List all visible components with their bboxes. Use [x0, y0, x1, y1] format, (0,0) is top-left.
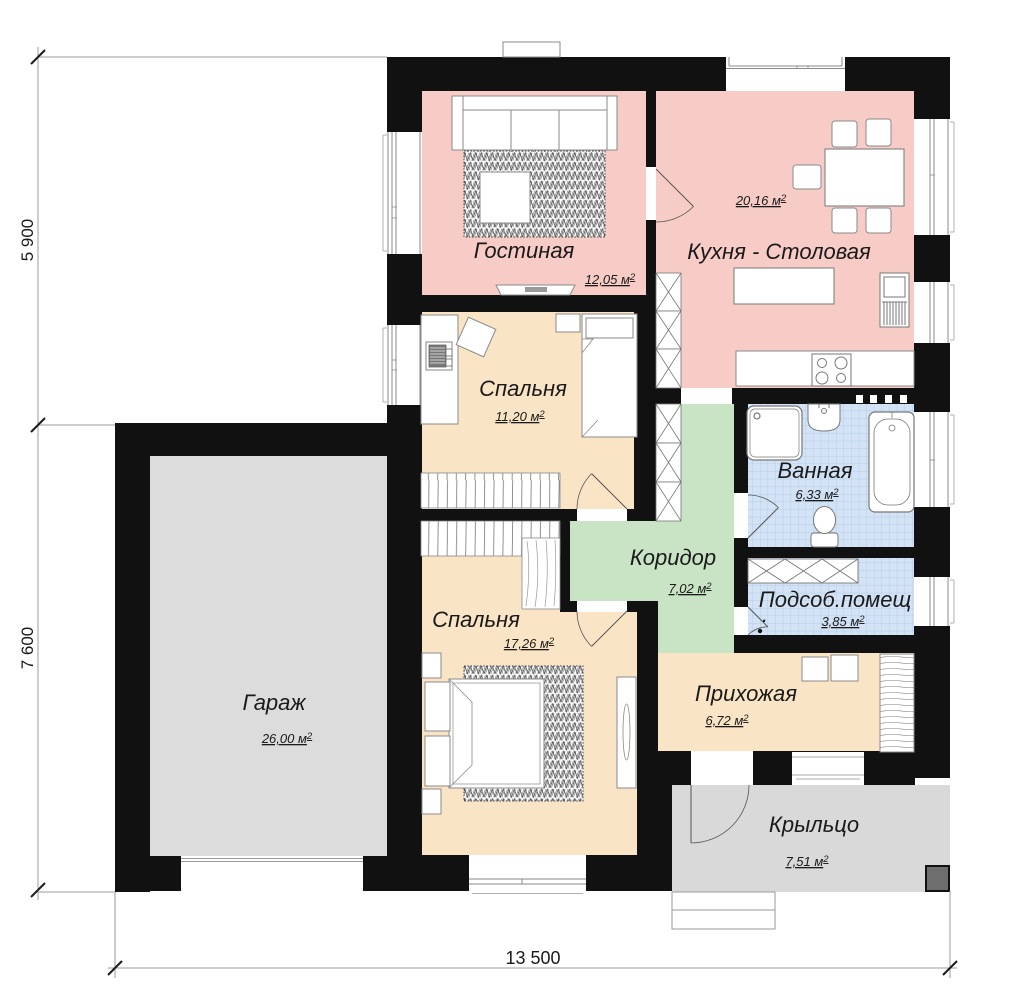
svg-text:20,16 м2: 20,16 м2 [735, 193, 787, 208]
svg-text:Спальня: Спальня [432, 607, 520, 632]
svg-text:Прихожая: Прихожая [695, 681, 797, 706]
svg-text:3,85 м2: 3,85 м2 [821, 614, 865, 629]
svg-text:Спальня: Спальня [479, 376, 567, 401]
svg-text:Коридор: Коридор [630, 545, 716, 570]
svg-text:11,20 м2: 11,20 м2 [495, 409, 545, 424]
svg-text:12,05 м2: 12,05 м2 [585, 272, 636, 287]
svg-text:Ванная: Ванная [777, 458, 852, 483]
svg-text:Гостиная: Гостиная [474, 238, 575, 263]
svg-text:6,33 м2: 6,33 м2 [795, 487, 839, 502]
svg-text:Подсоб.помещ: Подсоб.помещ [759, 587, 911, 612]
svg-text:Крыльцо: Крыльцо [769, 812, 859, 837]
svg-text:7,02 м2: 7,02 м2 [668, 581, 712, 596]
svg-text:5 900: 5 900 [18, 219, 37, 262]
svg-text:26,00 м2: 26,00 м2 [261, 731, 313, 746]
svg-text:7 600: 7 600 [18, 627, 37, 670]
svg-text:.: . [762, 602, 768, 627]
svg-text:Гараж: Гараж [242, 690, 306, 715]
svg-text:7,51 м2: 7,51 м2 [785, 854, 829, 869]
svg-text:13 500: 13 500 [505, 948, 560, 968]
svg-text:17,26 м2: 17,26 м2 [504, 636, 555, 651]
svg-text:Кухня - Столовая: Кухня - Столовая [687, 239, 871, 264]
svg-text:6,72 м2: 6,72 м2 [705, 713, 749, 728]
